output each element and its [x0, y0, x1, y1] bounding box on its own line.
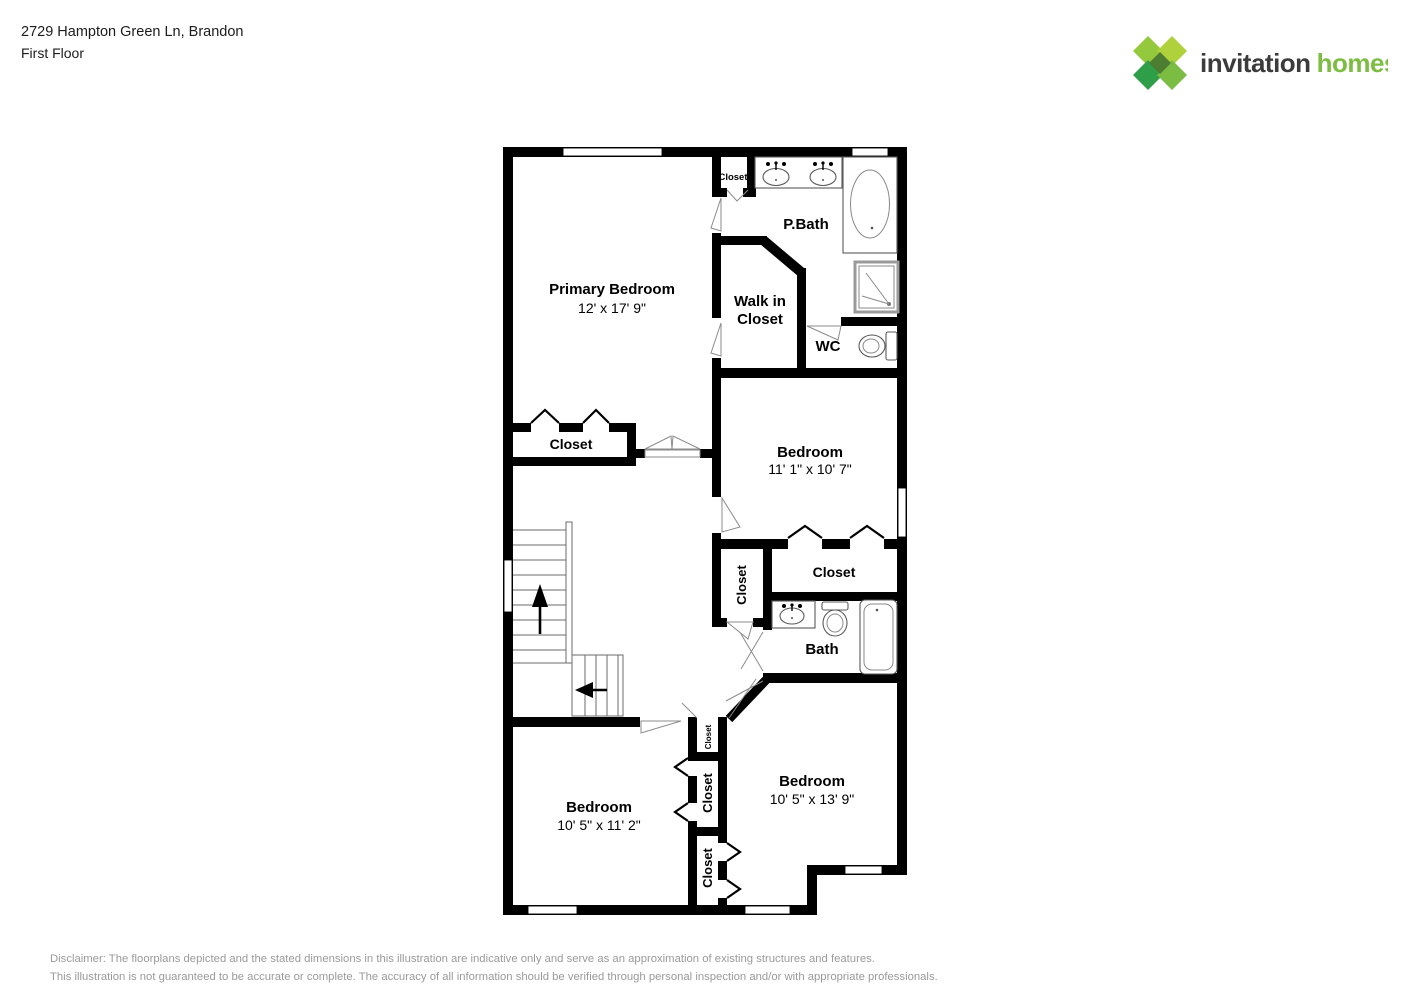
stairs-up-arrow — [532, 584, 548, 634]
primary-double-door-right — [672, 436, 700, 449]
disclaimer-line2: This illustration is not guaranteed to b… — [50, 971, 938, 983]
floorplan-page: 2729 Hampton Green Ln, Brandon First Flo… — [0, 0, 1414, 1000]
primary-closet-label: Closet — [550, 436, 593, 452]
bedroom2-dims: 11' 1" x 10' 7" — [768, 461, 852, 477]
bedroom2-door — [722, 498, 740, 532]
tiny-closet-label: Closet — [704, 724, 713, 749]
top-closet-label: Closet — [718, 172, 748, 183]
bath-tub — [860, 600, 897, 674]
disclaimer-line1: Disclaimer: The floorplans depicted and … — [50, 953, 875, 965]
primary-bedroom-label: Primary Bedroom — [549, 281, 675, 298]
walkin-closet-label-line1: Walk in — [734, 293, 786, 310]
primary-bedroom-dims: 12' x 17' 9" — [578, 300, 646, 316]
wc-label: WC — [816, 338, 841, 355]
hall-closet-label: Closet — [734, 564, 749, 604]
bedroom3-dims: 10' 5" x 11' 2" — [557, 817, 641, 833]
pbath-door — [711, 198, 721, 231]
bath-door — [741, 632, 763, 669]
bedroom4-dims: 10' 5" x 13' 9" — [770, 791, 855, 807]
bottom-closet-label: Closet — [700, 847, 715, 887]
bedroom3-label: Bedroom — [566, 799, 632, 816]
pbath-tub — [843, 157, 897, 253]
primary-double-door-left — [645, 436, 672, 449]
bedroom3-door — [641, 721, 681, 733]
stairs-down-arrow — [575, 682, 607, 698]
bath-label: Bath — [805, 641, 838, 658]
bedroom2-label: Bedroom — [777, 444, 843, 461]
floorplan-drawing: Primary Bedroom 12' x 17' 9" P.Bath Walk… — [0, 0, 1414, 1000]
pbath-label: P.Bath — [783, 216, 829, 233]
shower — [855, 262, 898, 312]
tiny-closet-door — [682, 703, 697, 718]
primary-double-door-threshold — [645, 450, 700, 457]
pbath-vanity — [755, 157, 842, 188]
bedroom4-label: Bedroom — [779, 773, 845, 790]
bath-vanity — [772, 601, 815, 628]
walkin-closet-door — [711, 323, 721, 356]
hall-closet-door — [727, 622, 753, 639]
staircase — [513, 522, 623, 716]
middle-closet-label: Closet — [700, 772, 715, 812]
bath-toilet — [822, 602, 848, 636]
walkin-closet-label-line2: Closet — [737, 311, 783, 328]
bedroom2-closet-label: Closet — [813, 564, 856, 580]
wc-toilet — [859, 332, 897, 360]
